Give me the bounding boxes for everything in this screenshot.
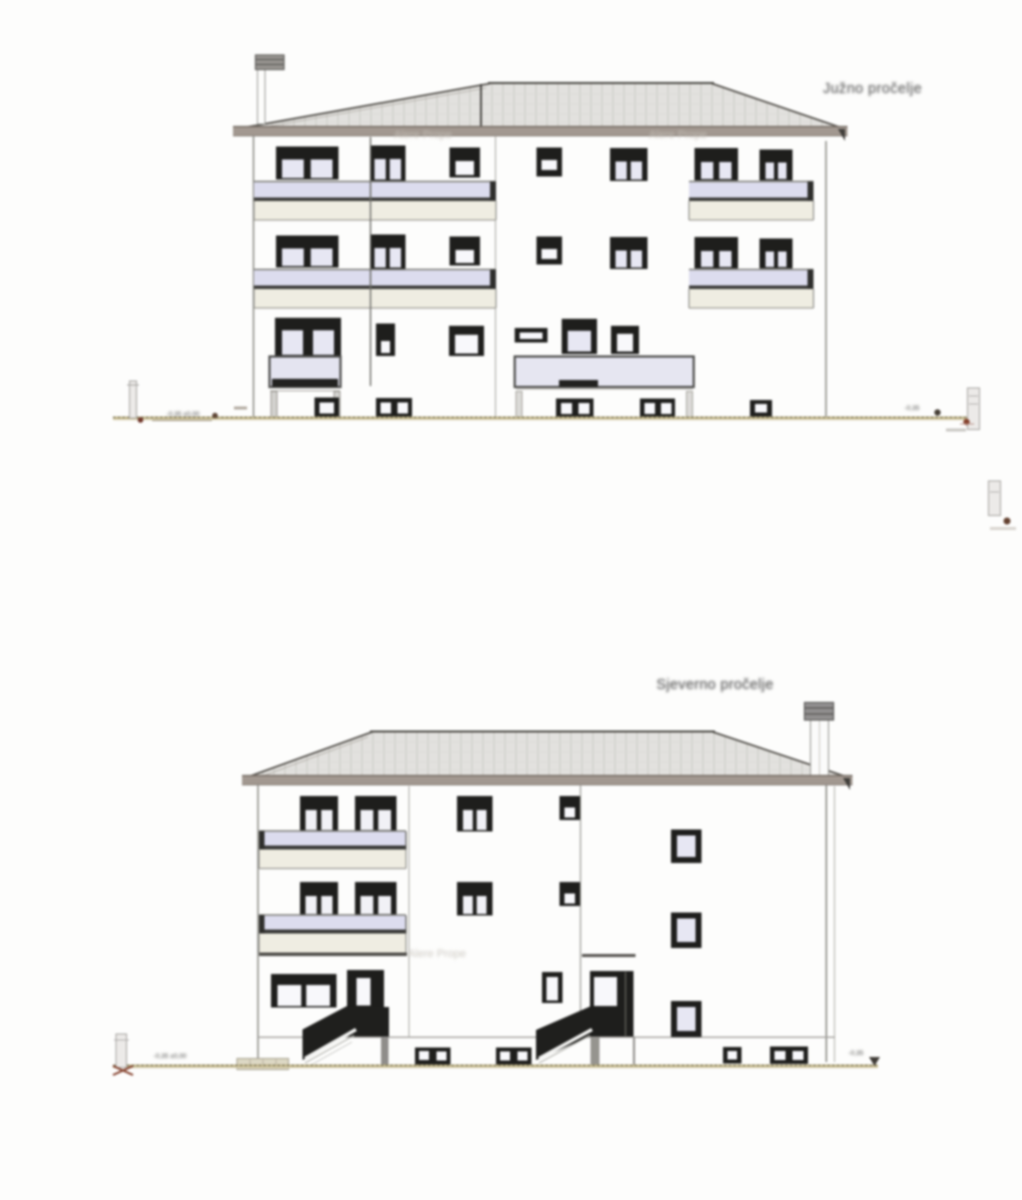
svg-text:-0,35: -0,35 bbox=[849, 1050, 864, 1057]
svg-text:Alere Prope: Alere Prope bbox=[649, 129, 707, 141]
svg-text:-0,35 ±0,00: -0,35 ±0,00 bbox=[167, 411, 200, 418]
svg-text:Alere Prope: Alere Prope bbox=[394, 129, 452, 141]
svg-text:-0,35: -0,35 bbox=[905, 405, 920, 412]
svg-text:Alere Prope: Alere Prope bbox=[408, 948, 466, 960]
svg-text:-0,35 ±0,00: -0,35 ±0,00 bbox=[154, 1053, 187, 1060]
svg-text:Južno pročelje: Južno pročelje bbox=[823, 81, 922, 97]
svg-text:Sjeverno pročelje: Sjeverno pročelje bbox=[656, 677, 773, 693]
